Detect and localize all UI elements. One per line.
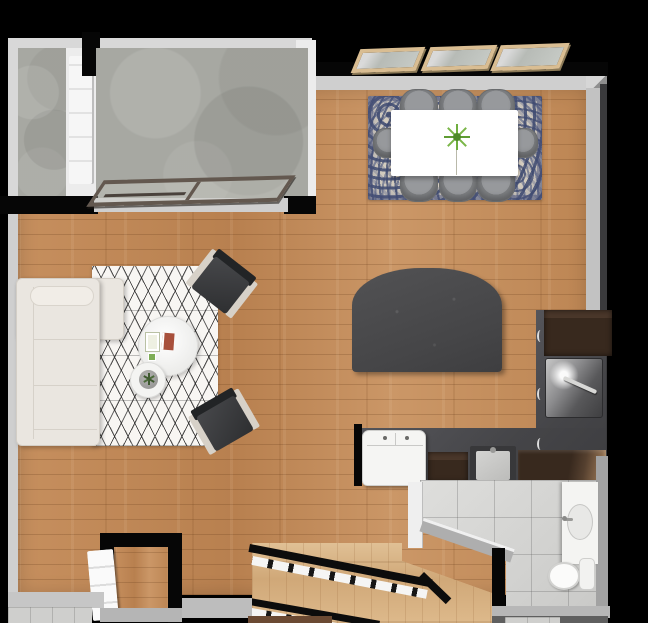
closet-floor: [114, 547, 168, 613]
refrigerator-handle: [563, 376, 598, 394]
range-knob: [405, 436, 409, 440]
sofa-cushion-seam: [33, 385, 97, 386]
balcony-left-floor: [18, 48, 68, 196]
sliding-glass-door: [86, 175, 295, 206]
side-table-plant: [143, 373, 155, 385]
floor-plan-render: [0, 0, 648, 623]
hall-wood-sliver: [248, 616, 332, 623]
sliding-door-panel-edge: [104, 192, 187, 197]
kitchen-base-cabinet: [518, 450, 606, 484]
sink-basin: [476, 451, 510, 480]
window-3: [490, 43, 570, 71]
wall-balcony-bottom-right: [284, 196, 316, 214]
cabinet-handle-icon: [537, 388, 544, 400]
wall-balcony-bottom-left: [0, 196, 98, 214]
cabinet-handle-icon: [537, 330, 544, 342]
table-plant-stem: [456, 148, 457, 175]
kitchen-base-cabinet: [428, 452, 468, 482]
coffee-table-deco: [148, 353, 156, 361]
sofa-cushion-seam: [33, 339, 97, 340]
window-1: [351, 47, 426, 73]
coffee-table-book-green: [146, 333, 159, 351]
sofa-back-seam: [33, 287, 34, 439]
cabinet-handle-icon: [537, 438, 544, 450]
range-seam: [395, 433, 396, 445]
window-2: [421, 45, 498, 71]
hall-wall-face: [182, 598, 252, 618]
kitchen-sink: [470, 446, 516, 484]
bathroom-vanity: [562, 482, 598, 564]
range-seam: [367, 445, 423, 446]
table-plant: [444, 124, 470, 150]
kitchen-wall-stub: [354, 424, 362, 486]
closet-wall-bottom-face: [100, 608, 182, 622]
coffee-table-book-red: [161, 333, 174, 351]
toilet-bowl: [548, 562, 580, 590]
toilet-tank: [579, 558, 595, 590]
sofa-cushion-seam: [33, 429, 97, 430]
vanity-sink: [567, 504, 593, 540]
vanity-faucet-icon: [562, 516, 567, 521]
wall-top-face: [300, 76, 600, 90]
entry-wall-face: [8, 592, 104, 608]
sink-faucet-icon: [490, 447, 496, 453]
range-knob: [383, 436, 387, 440]
bed: [352, 268, 502, 372]
sofa-bolster-pillow: [30, 286, 94, 306]
kitchen-pantry-cabinet: [544, 310, 612, 356]
sliding-door-divider: [185, 182, 201, 200]
plant-center: [453, 133, 461, 141]
refrigerator: [545, 358, 603, 418]
bathroom-tile-sliver: [505, 617, 560, 623]
entry-tile-floor: [8, 607, 92, 623]
kitchen-range: [362, 430, 426, 486]
bathroom-door: [408, 482, 422, 548]
